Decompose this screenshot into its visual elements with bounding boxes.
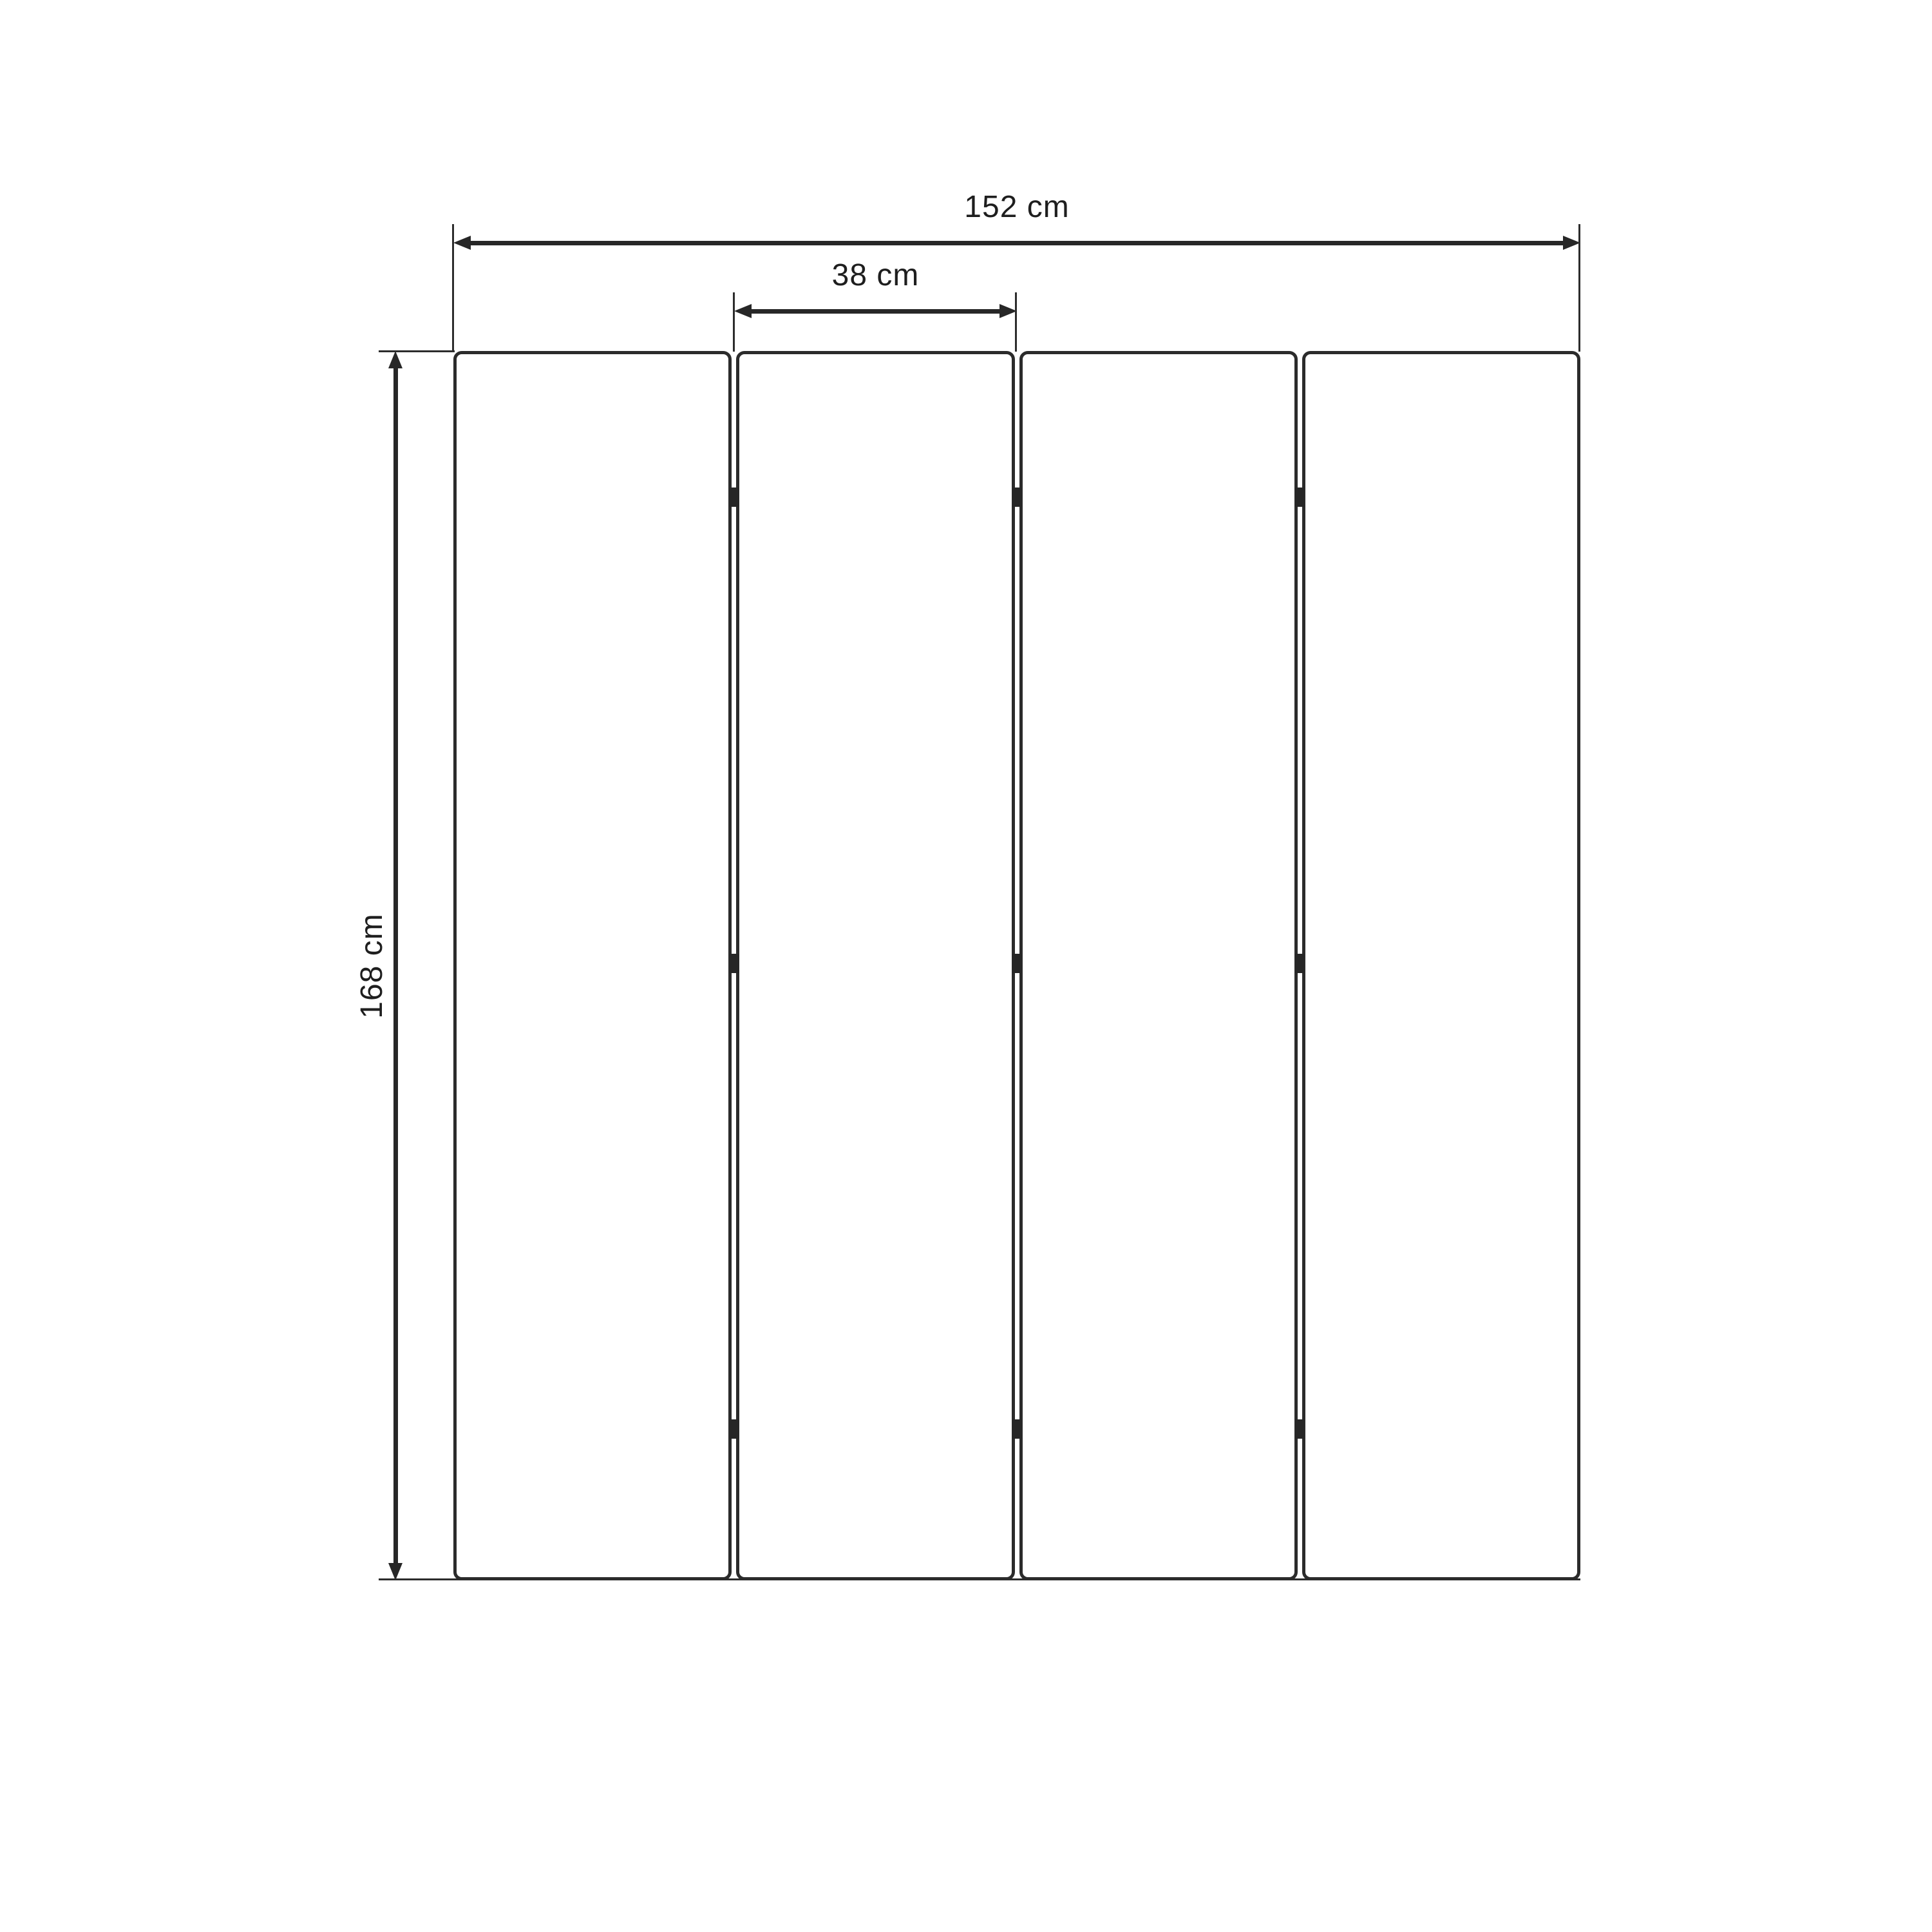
panel-row [453, 351, 1580, 1580]
panel-4 [1302, 351, 1580, 1580]
hinge-mark [1012, 954, 1021, 973]
total-width-dimension-label: 152 cm [453, 192, 1580, 223]
arrowhead-left-icon [453, 236, 471, 250]
panel-width-dimension-line [748, 309, 1003, 314]
extension-line [452, 224, 454, 352]
panel-width-dimension-label: 38 cm [734, 260, 1017, 291]
panel-3 [1019, 351, 1298, 1580]
arrowhead-right-icon [999, 304, 1017, 318]
height-dimension-label: 168 cm [357, 913, 388, 1018]
hinge-mark [1295, 1419, 1304, 1439]
extension-line [1578, 224, 1580, 352]
hinge-mark [730, 1419, 739, 1439]
hinge-mark [1295, 954, 1304, 973]
hinge-mark [1012, 1419, 1021, 1439]
hinge-mark [1295, 488, 1304, 507]
hinge-mark [1012, 488, 1021, 507]
technical-drawing: 152 cm 38 cm 168 cm [0, 0, 1932, 1932]
panel-2 [736, 351, 1014, 1580]
total-width-dimension-line [468, 241, 1564, 245]
panel-1 [453, 351, 732, 1580]
arrowhead-right-icon [1563, 236, 1580, 250]
arrowhead-down-icon [388, 1563, 402, 1580]
extension-line [1015, 292, 1017, 352]
extension-line [733, 292, 735, 352]
extension-line [379, 350, 455, 352]
hinge-mark [730, 488, 739, 507]
arrowhead-up-icon [388, 351, 402, 368]
hinge-mark [730, 954, 739, 973]
arrowhead-left-icon [734, 304, 752, 318]
height-dimension-line [393, 365, 398, 1566]
